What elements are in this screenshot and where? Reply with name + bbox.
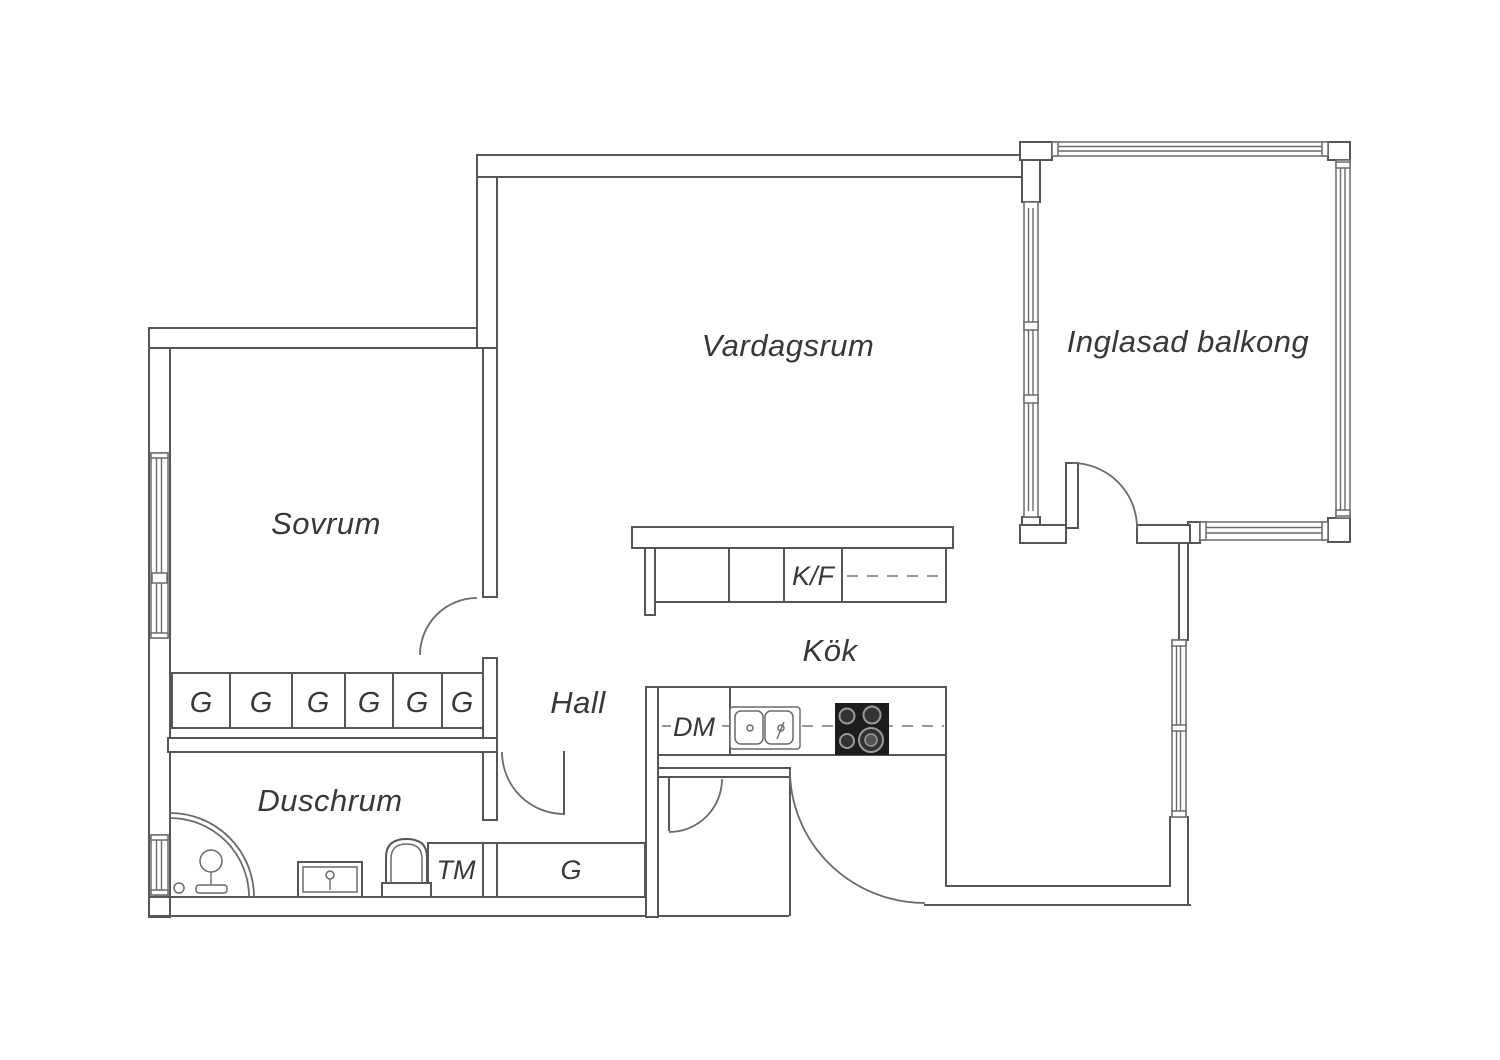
window-balcony-left (1024, 202, 1038, 517)
stove (835, 703, 889, 755)
room-label-balcony: Inglasad balkong (1067, 324, 1309, 359)
window-balcony-bottom (1200, 522, 1328, 540)
floorplan-drawing: G G G G G G TM G K/F DM (0, 0, 1500, 1060)
kitchen-counter: DM (658, 687, 946, 755)
washing-machine-label: TM (437, 855, 476, 885)
room-label-shower-room: Duschrum (257, 783, 402, 818)
door-shower-room (502, 752, 564, 814)
bathroom-sink (298, 862, 362, 897)
window-balcony-right (1336, 160, 1350, 518)
window-bedroom-left (151, 453, 168, 638)
wardrobe-cell-label: G (406, 687, 429, 719)
room-label-bedroom: Sovrum (271, 506, 381, 541)
wardrobe-cell-label: G (451, 687, 474, 719)
wardrobe-cell-label: G (307, 687, 330, 719)
washing-machine: TM (428, 843, 483, 897)
door-entry (790, 770, 925, 915)
kitchen-island: K/F (632, 527, 953, 615)
shower (170, 813, 254, 897)
room-label-hall: Hall (550, 685, 606, 720)
wardrobe-cell-label: G (250, 687, 273, 719)
dishwasher-label: DM (673, 712, 715, 742)
kitchen-sink (730, 707, 800, 749)
wardrobe-row: G G G G G G (172, 673, 483, 728)
fridge-freezer-label: K/F (792, 561, 836, 591)
window-kitchen-right (1172, 640, 1186, 817)
window-balcony-top (1052, 142, 1328, 156)
window-shower-room-left (151, 835, 168, 895)
wardrobe-cell-label: G (190, 687, 213, 719)
door-kitchen (669, 777, 722, 832)
room-label-living-room: Vardagsrum (702, 328, 875, 363)
hall-closet-label: G (560, 855, 581, 885)
floorplan-page: G G G G G G TM G K/F DM (0, 0, 1500, 1060)
door-balcony (1066, 463, 1137, 528)
wardrobe-cell-label: G (358, 687, 381, 719)
hall-closet: G (497, 843, 645, 897)
door-bedroom (420, 598, 477, 655)
toilet (382, 839, 431, 897)
room-label-kitchen: Kök (803, 633, 859, 668)
